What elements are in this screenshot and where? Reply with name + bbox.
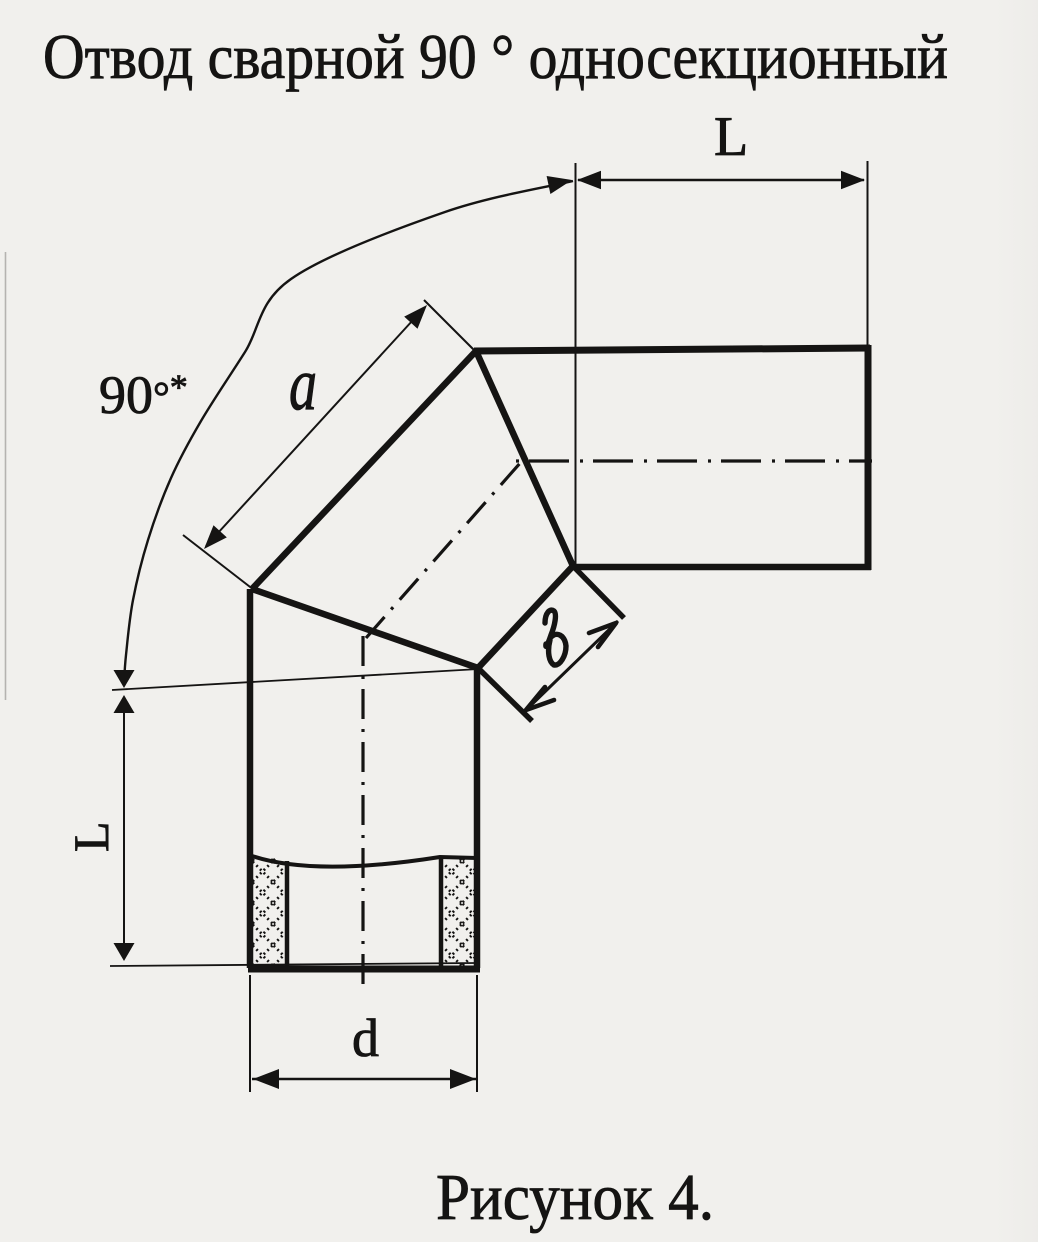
svg-text:a: a (289, 343, 317, 426)
svg-text:Отвод сварной 90 ° односекцион: Отвод сварной 90 ° односекционный (43, 21, 948, 92)
svg-text:L: L (714, 106, 748, 168)
svg-text:d: d (352, 1008, 379, 1068)
svg-text:Рисунок 4.: Рисунок 4. (436, 1161, 714, 1234)
svg-text:L: L (63, 821, 119, 852)
